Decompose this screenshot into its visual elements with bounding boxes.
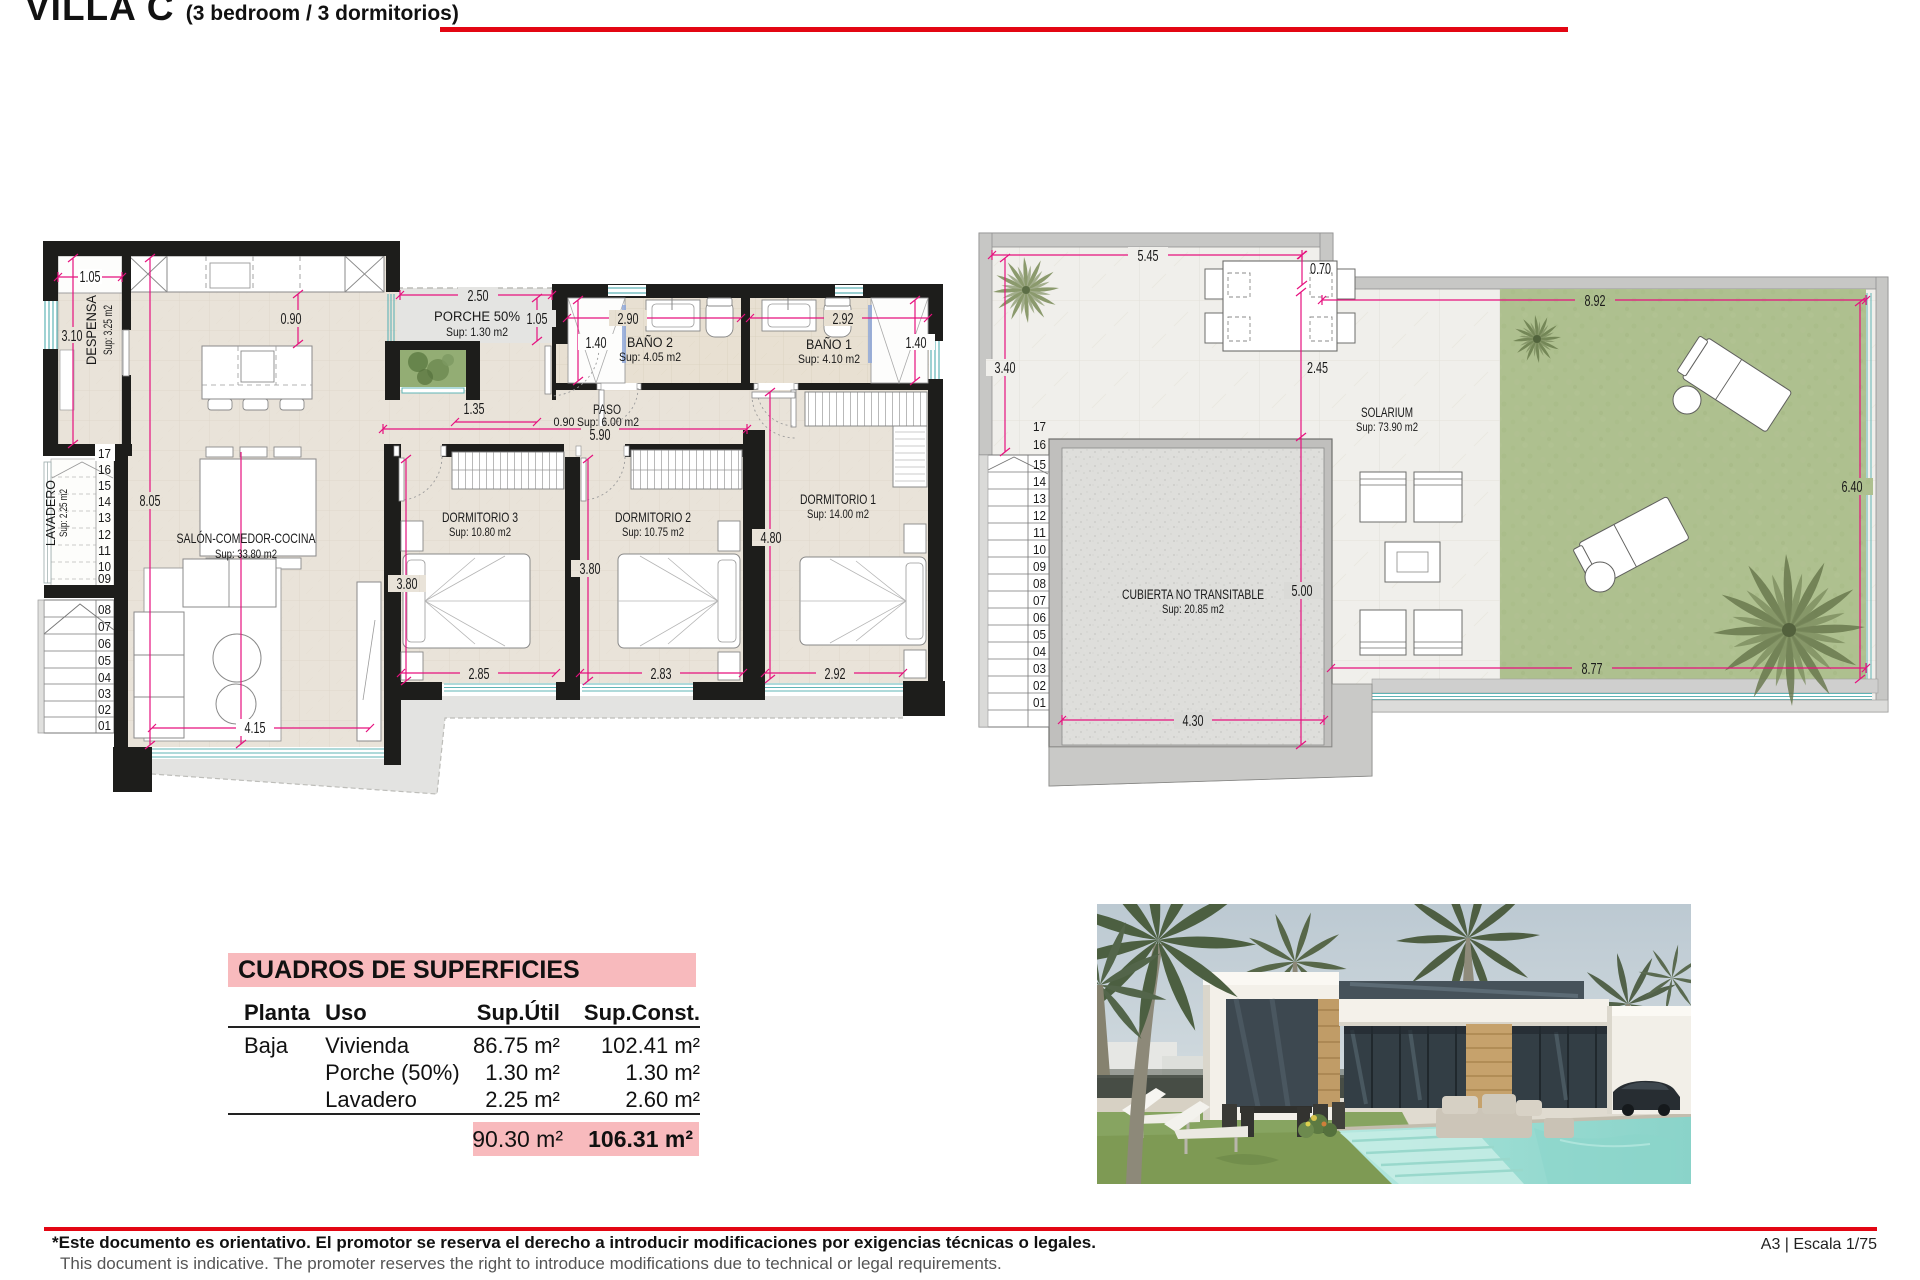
svg-text:04: 04 <box>1033 645 1046 659</box>
svg-text:03: 03 <box>98 687 111 701</box>
svg-text:8.77: 8.77 <box>1582 661 1603 678</box>
svg-text:8.05: 8.05 <box>140 493 161 510</box>
svg-text:01: 01 <box>98 719 111 733</box>
svg-text:Sup: 73.90 m2: Sup: 73.90 m2 <box>1356 422 1418 434</box>
svg-text:12: 12 <box>98 528 111 542</box>
svg-text:1.35: 1.35 <box>464 401 485 418</box>
svg-text:17: 17 <box>98 447 111 461</box>
svg-text:14: 14 <box>98 495 111 509</box>
svg-text:Sup: 2.25 m2: Sup: 2.25 m2 <box>58 489 70 537</box>
svg-text:5.00: 5.00 <box>1292 583 1313 600</box>
svg-text:Sup: 3.25 m2: Sup: 3.25 m2 <box>103 305 115 355</box>
svg-text:5.90: 5.90 <box>590 427 611 444</box>
svg-text:02: 02 <box>98 703 111 717</box>
svg-text:13: 13 <box>1033 492 1046 506</box>
svg-text:11: 11 <box>1033 526 1046 540</box>
svg-text:4.80: 4.80 <box>761 530 782 547</box>
svg-text:Sup: 10.80 m2: Sup: 10.80 m2 <box>449 527 511 539</box>
svg-text:1.05: 1.05 <box>527 311 548 328</box>
svg-text:Sup: 1.30 m2: Sup: 1.30 m2 <box>446 327 508 339</box>
svg-text:06: 06 <box>98 637 111 651</box>
svg-text:3.40: 3.40 <box>995 360 1016 377</box>
svg-text:13: 13 <box>98 511 111 525</box>
svg-text:12: 12 <box>1033 509 1046 523</box>
svg-text:2.90: 2.90 <box>618 311 639 328</box>
svg-text:2.50: 2.50 <box>468 288 489 305</box>
svg-text:06: 06 <box>1033 611 1046 625</box>
svg-text:3.80: 3.80 <box>397 576 418 593</box>
svg-text:11: 11 <box>98 544 111 558</box>
svg-text:Sup: 10.75 m2: Sup: 10.75 m2 <box>622 527 684 539</box>
svg-text:2.85: 2.85 <box>469 666 490 683</box>
svg-text:6.40: 6.40 <box>1842 479 1863 496</box>
svg-text:07: 07 <box>98 620 111 634</box>
svg-text:0.90: 0.90 <box>281 311 302 328</box>
svg-text:Sup: 33.80 m2: Sup: 33.80 m2 <box>215 549 277 561</box>
svg-text:SOLARIUM: SOLARIUM <box>1361 405 1413 420</box>
svg-text:05: 05 <box>1033 628 1046 642</box>
svg-text:17: 17 <box>1033 420 1046 434</box>
svg-text:DORMITORIO 2: DORMITORIO 2 <box>615 509 691 525</box>
svg-text:04: 04 <box>98 671 111 685</box>
svg-text:2.83: 2.83 <box>651 666 672 683</box>
svg-text:PASO: PASO <box>593 402 621 417</box>
svg-text:Sup: 4.10 m2: Sup: 4.10 m2 <box>798 354 860 366</box>
svg-text:08: 08 <box>1033 577 1046 591</box>
svg-text:0.70: 0.70 <box>1310 261 1331 278</box>
svg-text:Sup: 14.00 m2: Sup: 14.00 m2 <box>807 509 869 521</box>
svg-text:1.05: 1.05 <box>80 269 101 286</box>
svg-text:10: 10 <box>1033 543 1046 557</box>
svg-text:1.40: 1.40 <box>586 335 607 352</box>
svg-text:08: 08 <box>98 603 111 617</box>
svg-text:3.80: 3.80 <box>580 561 601 578</box>
svg-text:DORMITORIO 3: DORMITORIO 3 <box>442 509 518 525</box>
svg-text:02: 02 <box>1033 679 1046 693</box>
svg-text:3.10: 3.10 <box>62 328 83 345</box>
svg-text:BAÑO 1: BAÑO 1 <box>806 337 852 352</box>
svg-text:03: 03 <box>1033 662 1046 676</box>
svg-text:Sup: 6.00 m2: Sup: 6.00 m2 <box>577 417 639 429</box>
svg-text:09: 09 <box>98 572 111 586</box>
svg-text:SALÓN-COMEDOR-COCINA: SALÓN-COMEDOR-COCINA <box>177 530 316 546</box>
svg-text:07: 07 <box>1033 594 1046 608</box>
svg-text:0.90: 0.90 <box>554 415 575 429</box>
svg-text:Sup: 20.85 m2: Sup: 20.85 m2 <box>1162 604 1224 616</box>
svg-text:15: 15 <box>1033 458 1046 472</box>
svg-text:PORCHE 50%: PORCHE 50% <box>434 309 520 324</box>
svg-text:Sup: 4.05 m2: Sup: 4.05 m2 <box>619 352 681 364</box>
svg-text:05: 05 <box>98 654 111 668</box>
svg-text:15: 15 <box>98 479 111 493</box>
svg-text:09: 09 <box>1033 560 1046 574</box>
svg-text:01: 01 <box>1033 696 1046 710</box>
svg-text:LAVADERO: LAVADERO <box>44 480 58 546</box>
svg-text:1.40: 1.40 <box>906 335 927 352</box>
svg-text:16: 16 <box>1033 438 1046 452</box>
svg-text:14: 14 <box>1033 475 1046 489</box>
svg-text:5.45: 5.45 <box>1138 248 1159 265</box>
svg-text:DESPENSA: DESPENSA <box>83 294 99 365</box>
svg-text:2.92: 2.92 <box>833 311 854 328</box>
svg-text:2.92: 2.92 <box>825 666 846 683</box>
svg-text:BAÑO 2: BAÑO 2 <box>627 335 673 350</box>
svg-text:DORMITORIO 1: DORMITORIO 1 <box>800 491 876 507</box>
svg-text:4.30: 4.30 <box>1183 713 1204 730</box>
svg-text:4.15: 4.15 <box>245 720 266 737</box>
svg-text:2.45: 2.45 <box>1307 360 1328 377</box>
svg-text:16: 16 <box>98 463 111 477</box>
svg-text:CUBIERTA NO TRANSITABLE: CUBIERTA NO TRANSITABLE <box>1122 587 1264 602</box>
svg-text:8.92: 8.92 <box>1585 293 1606 310</box>
